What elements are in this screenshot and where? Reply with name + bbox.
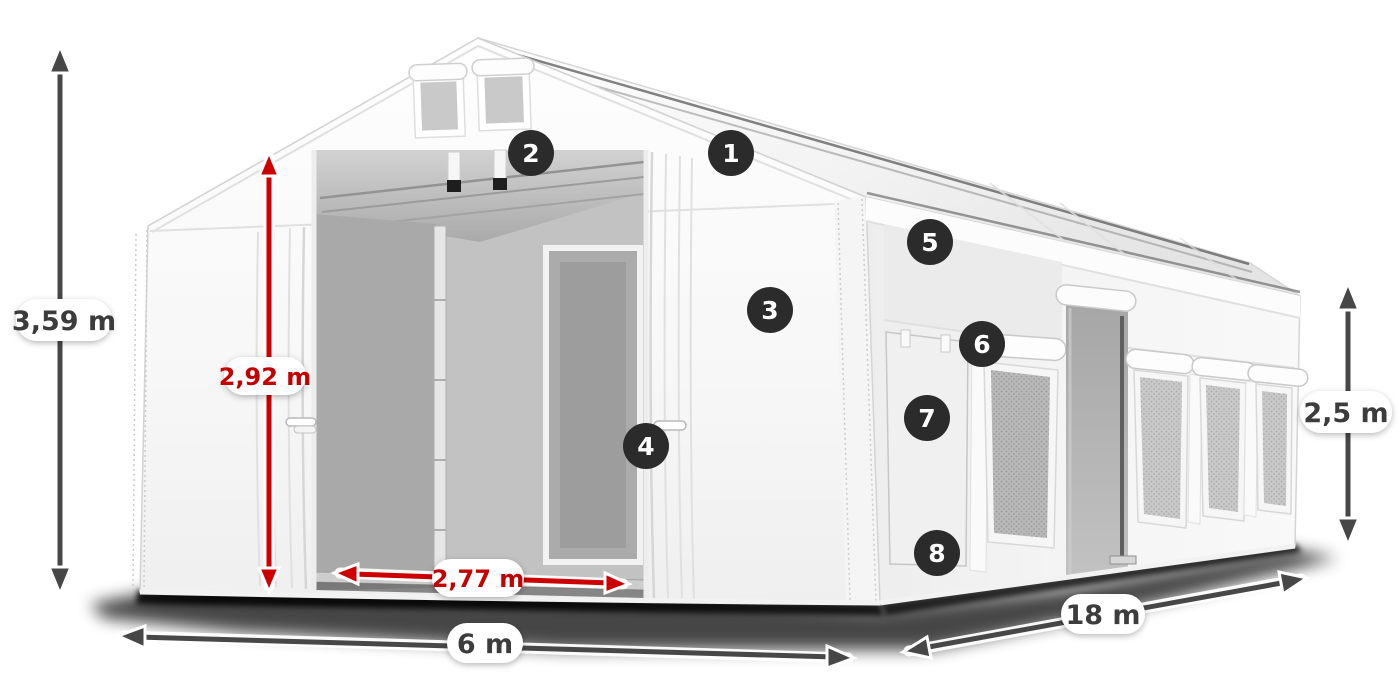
side-open-bay [1055, 284, 1137, 578]
entrance-width-label: 2,77 m [432, 565, 525, 593]
marker-number: 8 [928, 539, 945, 568]
tent-dimension-diagram: 3,59 m 2,92 m 2,77 m 6 m 18 m [0, 0, 1400, 700]
door-hanger-tab [901, 330, 910, 347]
gable-vent-right [472, 58, 536, 131]
strap-buckle [493, 178, 507, 190]
side-height-dimension: 2,5 m [1300, 283, 1392, 545]
marker-number: 5 [921, 228, 938, 257]
window-mesh [991, 370, 1050, 538]
door-hanger-tab [941, 335, 950, 352]
marker-4: 4 [623, 423, 669, 469]
total-height-dimension: 3,59 m [12, 46, 116, 594]
window-mesh [1206, 385, 1240, 512]
marker-number: 2 [522, 139, 539, 168]
marker-number: 1 [722, 139, 739, 168]
tent-width-label: 6 m [457, 629, 513, 660]
arrow-down-icon [1337, 518, 1359, 545]
arrow-up-icon [49, 46, 71, 73]
entrance-height-label: 2,92 m [219, 363, 312, 391]
window-mesh [1262, 391, 1287, 506]
marker-number: 6 [973, 330, 990, 359]
marker-number: 3 [761, 296, 778, 325]
interior-pole [434, 226, 446, 590]
marker-7: 7 [904, 395, 950, 441]
marker-1: 1 [708, 130, 754, 176]
marker-6: 6 [959, 321, 1005, 367]
vent-rolled-cover [409, 63, 468, 81]
arrow-down-icon [49, 567, 71, 594]
pole-base-plate [1110, 556, 1136, 564]
hanging-strap [447, 152, 461, 192]
vent-pane [484, 76, 524, 123]
arrow-left-icon [118, 626, 145, 648]
side-door-panel [886, 330, 968, 566]
marker-number: 7 [918, 404, 935, 433]
tent-illustration [133, 38, 1309, 603]
marker-2: 2 [508, 130, 554, 176]
marker-3: 3 [747, 287, 793, 333]
vent-rolled-cover [472, 58, 535, 76]
front-entrance-interior [314, 150, 646, 598]
side-windows-rear [1125, 348, 1309, 528]
window-mesh [1140, 377, 1182, 519]
marker-5: 5 [907, 219, 953, 265]
vent-pane [420, 81, 458, 130]
front-left-corner-stitch [133, 234, 136, 590]
inner-doorway-curtain [560, 262, 626, 548]
side-height-label: 2,5 m [1303, 398, 1388, 429]
hanging-strap [493, 150, 507, 190]
total-height-label: 3,59 m [12, 306, 116, 337]
interior-partition-curtain [314, 214, 436, 590]
strap-buckle [447, 180, 461, 192]
gable-vent-left [409, 63, 470, 138]
marker-8: 8 [914, 530, 960, 576]
marker-number: 4 [637, 432, 654, 461]
arrow-up-icon [1337, 283, 1359, 310]
tent-length-label: 18 m [1065, 600, 1140, 631]
